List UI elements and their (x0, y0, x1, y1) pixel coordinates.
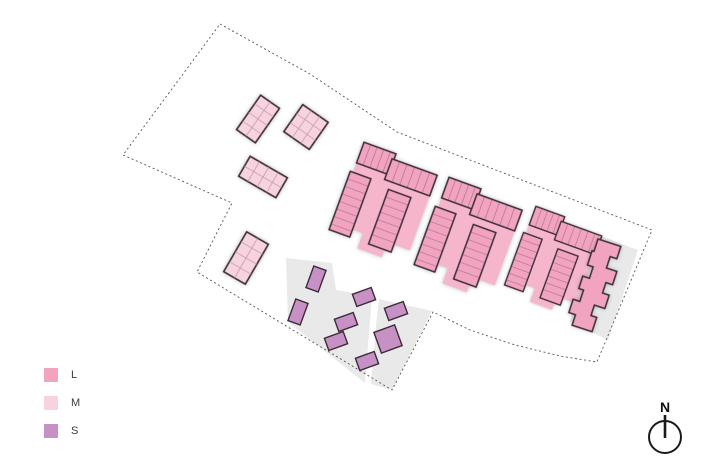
building-m-1 (237, 95, 280, 143)
legend-label-l: L (71, 368, 77, 382)
site-plan-svg: N (0, 0, 717, 471)
building-s-2 (352, 287, 375, 306)
building-m-4 (224, 232, 269, 284)
legend-item-s: S (44, 424, 80, 438)
legend-swatch-l (44, 368, 58, 382)
legend-item-m: M (44, 396, 80, 410)
legend-item-l: L (44, 368, 80, 382)
site-plan-figure: N L M S (0, 0, 717, 471)
legend-label-s: S (71, 424, 78, 438)
legend: L M S (44, 368, 80, 452)
building-m-3 (239, 156, 288, 197)
legend-swatch-s (44, 424, 58, 438)
north-label: N (660, 399, 670, 415)
building-m-2 (284, 105, 328, 150)
legend-label-m: M (71, 396, 80, 410)
north-arrow-icon: N (649, 399, 681, 453)
legend-swatch-m (44, 396, 58, 410)
